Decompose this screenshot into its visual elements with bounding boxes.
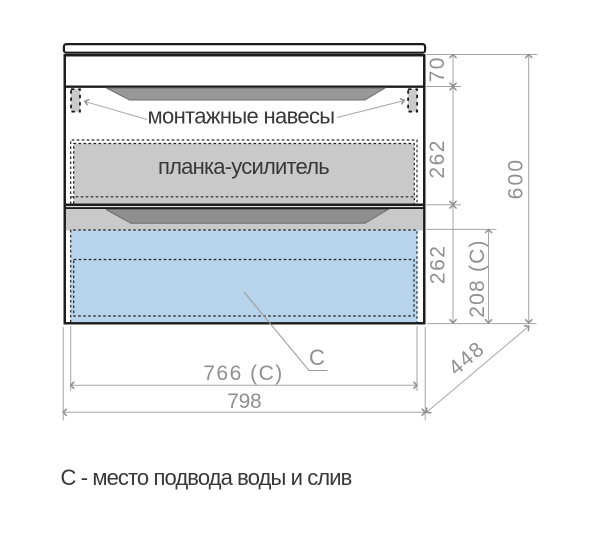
svg-text:262: 262 (426, 139, 449, 179)
svg-text:С: С (309, 345, 325, 370)
svg-text:70: 70 (426, 56, 449, 82)
svg-text:262: 262 (427, 245, 450, 285)
svg-text:С - место подвода воды и слив: С - место подвода воды и слив (61, 465, 352, 490)
svg-text:600: 600 (505, 158, 528, 200)
svg-text:планка-усилитель: планка-усилитель (158, 154, 329, 179)
svg-text:766 (С): 766 (С) (203, 362, 284, 385)
svg-text:208 (С): 208 (С) (466, 239, 489, 317)
svg-text:монтажные навесы: монтажные навесы (148, 104, 335, 129)
svg-text:798: 798 (227, 390, 261, 413)
